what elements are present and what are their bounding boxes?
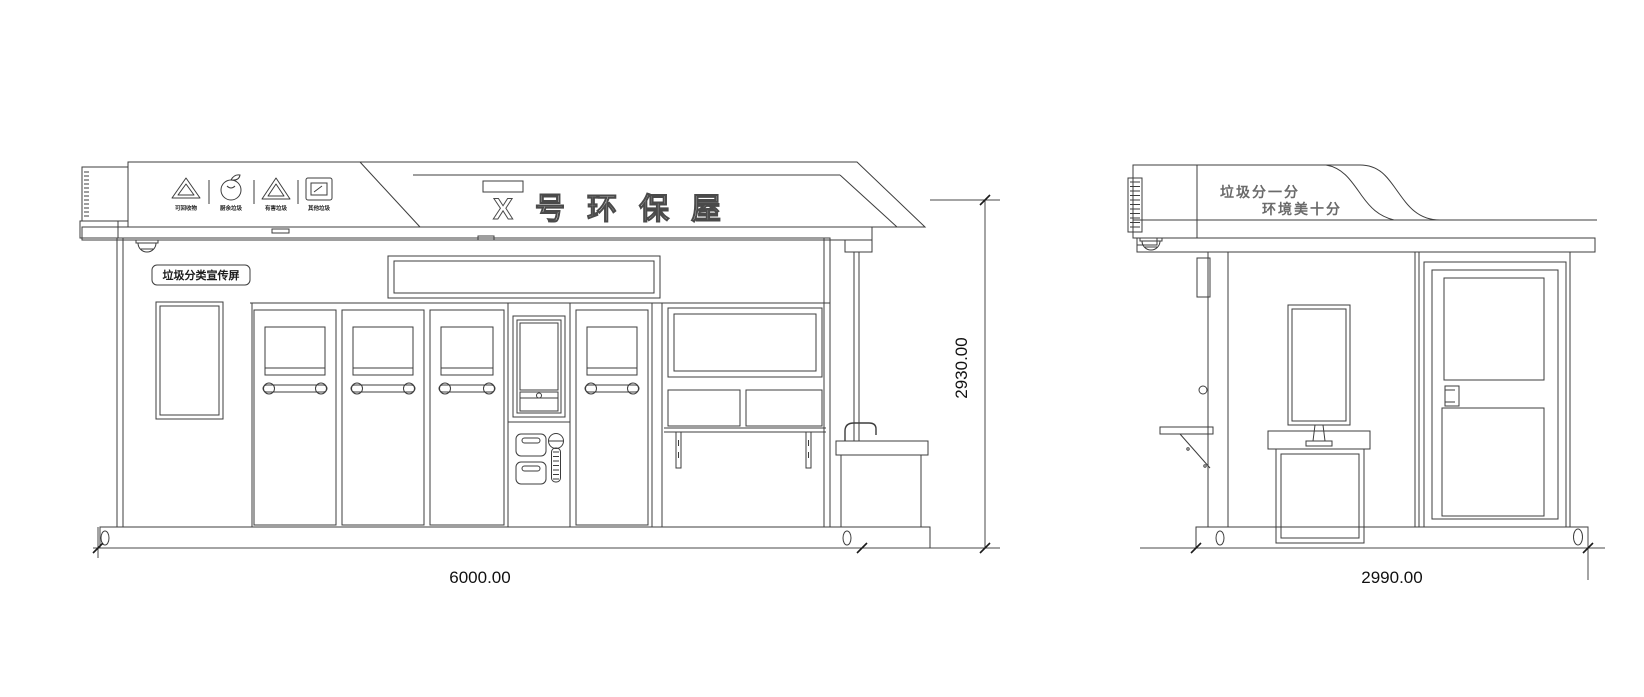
sink-cabinet — [841, 455, 921, 527]
level-gauge — [549, 434, 564, 483]
height-dimension: 2930.00 — [952, 337, 971, 398]
counter-panel — [668, 390, 740, 426]
screen-label-text: 垃圾分类宣传屏 — [163, 268, 240, 282]
icon-caption: 有害垃圾 — [265, 204, 288, 212]
header-display-panel — [388, 256, 660, 298]
icon-caption: 其他垃圾 — [308, 204, 331, 212]
depth-dimension: 2990.00 — [1361, 568, 1422, 587]
propaganda-screen — [156, 302, 223, 419]
service-hatch-2 — [516, 462, 546, 484]
faucet-icon — [845, 423, 876, 441]
base-plinth — [1196, 527, 1588, 548]
icon-caption: 可回收物 — [175, 204, 198, 212]
counter-bracket — [806, 432, 811, 468]
screen-stand — [1313, 425, 1325, 441]
side-wall — [1208, 252, 1570, 527]
slogan-line-1: 垃圾分一分 — [1220, 184, 1300, 200]
eave — [82, 227, 872, 252]
elevation-drawing: 可回收物 厨余垃圾 有害垃圾 其他垃圾 X号环保屋 — [0, 0, 1644, 697]
side-dimensions: 2990.00 — [1140, 527, 1605, 587]
signboard-end-cap — [1128, 165, 1197, 245]
base-plinth — [100, 527, 930, 548]
slogan-line-2: 环境美十分 — [1262, 201, 1342, 217]
recyclable-icon — [172, 178, 200, 198]
deposit-window — [513, 316, 565, 417]
width-dimension: 6000.00 — [449, 568, 510, 587]
cad-drawing-sheet: 可回收物 厨余垃圾 有害垃圾 其他垃圾 X号环保屋 — [0, 0, 1644, 697]
door-handle — [585, 385, 639, 392]
screen-label: 垃圾分类宣传屏 — [152, 265, 250, 285]
wall-fittings — [1160, 258, 1213, 468]
front-dimensions: 6000.00 2930.00 — [93, 195, 1000, 587]
interior-screen — [1288, 305, 1350, 446]
foot-slot — [843, 531, 851, 545]
deposit-tray — [520, 392, 558, 411]
washstand — [1268, 431, 1370, 543]
wide-window — [668, 308, 822, 377]
deposit-doors — [250, 303, 830, 527]
counter-panel — [746, 390, 822, 426]
service-hatch-1 — [516, 434, 546, 456]
dome-camera-icon — [1140, 238, 1162, 250]
door-leaf-4 — [576, 310, 648, 525]
control-column — [508, 303, 570, 527]
side-elevation: 垃圾分一分 环境美十分 — [1128, 165, 1605, 587]
door-panel — [1442, 408, 1544, 516]
building-title: X号环保屋 — [493, 193, 743, 226]
door-leaf-1 — [254, 310, 336, 525]
sink-counter — [836, 441, 928, 455]
kitchen-waste-icon — [221, 175, 241, 200]
entrance-door — [1424, 262, 1566, 527]
folding-shelf — [1160, 427, 1213, 468]
small-plaque — [483, 181, 523, 192]
door-handle — [263, 385, 327, 392]
wall-hook — [1199, 386, 1207, 394]
counter-bracket — [676, 432, 681, 468]
door-handle — [439, 385, 495, 392]
outdoor-sink — [836, 252, 928, 527]
foot-slot — [1574, 529, 1583, 545]
door-handle — [351, 385, 415, 392]
door-handle — [1445, 386, 1459, 406]
tray-button — [537, 393, 542, 398]
classification-icons: 可回收物 厨余垃圾 有害垃圾 其他垃圾 — [172, 175, 332, 212]
service-counter-section — [664, 308, 826, 468]
front-elevation: 可回收物 厨余垃圾 有害垃圾 其他垃圾 X号环保屋 — [80, 162, 1000, 587]
foot-slot — [1216, 531, 1224, 545]
vent-slot — [272, 229, 289, 233]
roof-band — [1137, 238, 1595, 252]
door-leaf-2 — [342, 310, 424, 525]
louver-vents — [84, 172, 89, 216]
icon-caption: 厨余垃圾 — [220, 204, 243, 212]
hazardous-waste-icon — [262, 178, 290, 199]
door-window — [1444, 278, 1544, 380]
signboard-profile: 垃圾分一分 环境美十分 — [1197, 165, 1597, 238]
dome-camera-icon — [136, 240, 158, 252]
door-leaf-3 — [430, 310, 504, 525]
other-waste-icon — [306, 178, 332, 200]
